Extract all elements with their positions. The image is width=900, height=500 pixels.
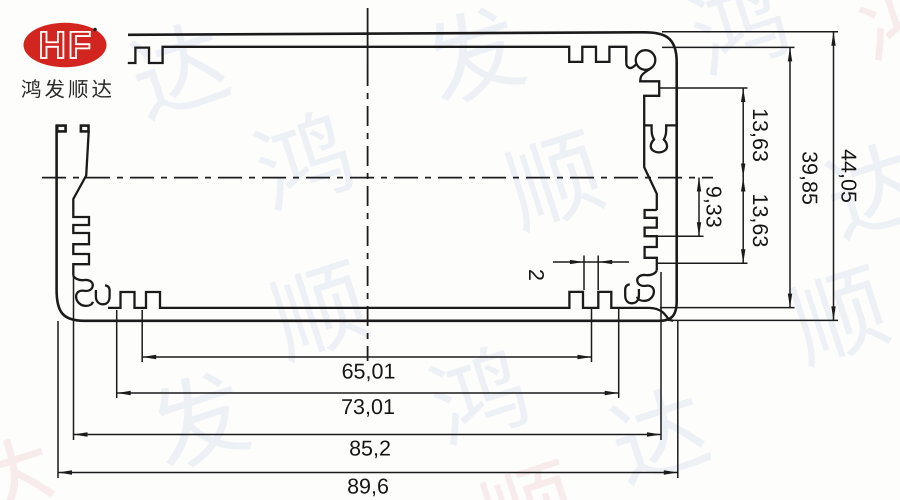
svg-text:44,05: 44,05: [837, 149, 861, 203]
svg-text:9,33: 9,33: [702, 186, 726, 228]
svg-text:89,6: 89,6: [347, 475, 389, 499]
svg-text:13,63: 13,63: [748, 193, 772, 247]
svg-text:39,85: 39,85: [798, 151, 822, 205]
svg-text:13,63: 13,63: [748, 108, 772, 162]
svg-text:73,01: 73,01: [341, 395, 395, 419]
svg-text:鸿发顺达: 鸿发顺达: [21, 79, 115, 102]
svg-text:65,01: 65,01: [342, 360, 396, 384]
svg-text:85,2: 85,2: [349, 437, 391, 461]
svg-text:HF: HF: [39, 25, 94, 67]
svg-text:2: 2: [524, 269, 548, 281]
